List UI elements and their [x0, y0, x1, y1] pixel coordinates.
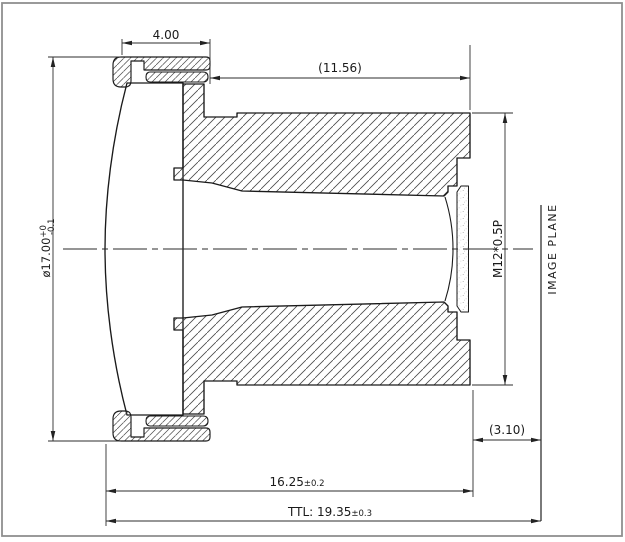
technical-drawing: 4.00 (11.56) ø17.00+0-0.1 M12*0.5P (3.10… — [0, 0, 625, 542]
dim-text-barrel-ref-length: (11.56) — [318, 61, 362, 75]
dim-text-ring-width: 4.00 — [153, 28, 180, 42]
dim-text-thread-spec: M12*0.5P — [491, 220, 505, 278]
dim-text-back-ref: (3.10) — [489, 423, 525, 437]
retaining-ring-bottom — [113, 411, 210, 441]
image-plane-label: IMAGE PLANE — [546, 203, 559, 294]
lens-mechanical-drawing-page: 4.00 (11.56) ø17.00+0-0.1 M12*0.5P (3.10… — [0, 0, 625, 542]
retaining-ring-top — [113, 57, 210, 87]
drawing-background — [0, 0, 625, 542]
